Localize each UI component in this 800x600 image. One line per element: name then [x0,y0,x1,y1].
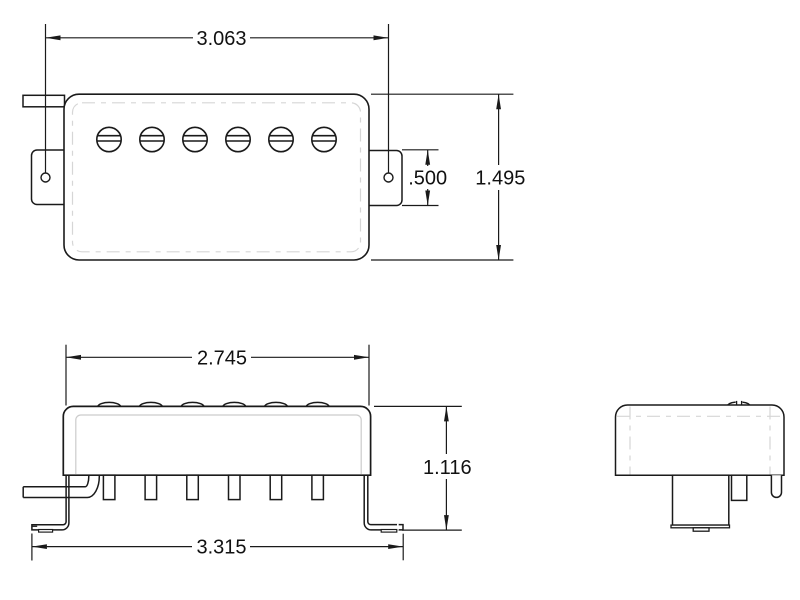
svg-text:.500: .500 [408,168,447,190]
svg-text:2.745: 2.745 [197,347,247,369]
svg-text:1.116: 1.116 [423,457,472,479]
svg-text:3.315: 3.315 [196,537,246,559]
svg-text:3.063: 3.063 [196,28,246,50]
svg-text:1.495: 1.495 [475,168,525,190]
